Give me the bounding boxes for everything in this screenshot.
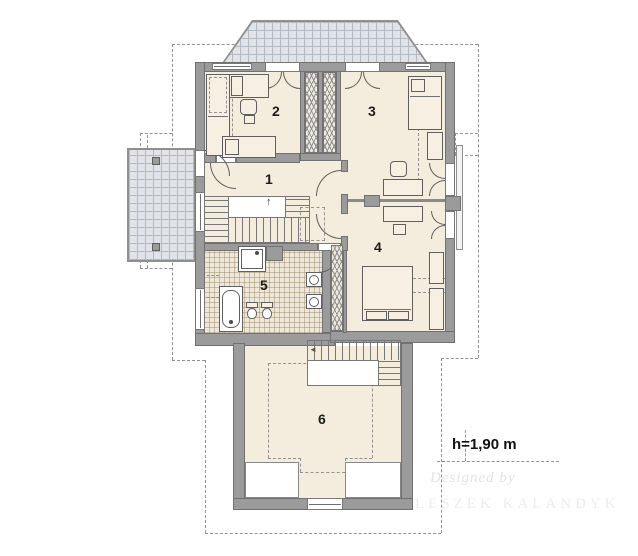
room3-desk — [383, 179, 423, 196]
window-mullion — [214, 66, 250, 67]
terrace-left-tiles — [129, 150, 194, 260]
bed-pillow — [411, 79, 425, 92]
washbasin-bowl — [309, 297, 319, 307]
room4-cabinet-b — [429, 288, 444, 330]
terrace-post — [152, 157, 160, 165]
bed-blanket-line — [410, 96, 440, 97]
wardrobe-room4 — [331, 245, 343, 331]
bay-door-room2-opening — [265, 62, 300, 72]
room3-chair — [390, 161, 407, 177]
room2-sofa — [229, 74, 269, 98]
room2-chair — [240, 99, 257, 115]
wall-wardrobe-right — [343, 245, 347, 333]
bay-door-room3-opening — [345, 62, 380, 72]
stairs-room6-treads — [307, 340, 401, 360]
floor-plan: ↑ ◄ — [0, 0, 638, 556]
closet-a — [305, 72, 318, 153]
wardrobe-dashed-inner — [209, 77, 227, 113]
partition-room3-room4 — [348, 199, 446, 202]
bathtub-drain — [229, 320, 233, 324]
wall-garage-left — [233, 343, 245, 510]
top-window-room3 — [405, 63, 431, 70]
balcony-door-room3-opening — [445, 163, 455, 196]
bed-pillow — [388, 311, 409, 320]
room4-chair — [393, 224, 406, 235]
stairs-main-right-flight — [286, 196, 310, 218]
height-line — [437, 461, 559, 462]
shower — [238, 246, 266, 272]
room3-bed — [408, 76, 442, 130]
garage-window — [307, 498, 343, 510]
toilet-bowl — [247, 308, 257, 319]
watermark-designed-by: Designed by — [430, 470, 516, 487]
balcony-door-post — [445, 196, 461, 211]
bidet-bowl — [262, 308, 272, 319]
closet-wall-right — [336, 71, 341, 161]
sofa-cushion — [231, 76, 243, 96]
window-mullion — [200, 290, 201, 328]
room3-nightstand — [427, 132, 443, 160]
room-label-hall: 1 — [265, 172, 273, 186]
balcony-dash-top — [455, 133, 478, 134]
bed-blanket-line — [364, 309, 411, 310]
room6-dash-bl — [268, 458, 301, 459]
roof-dash-bottom — [205, 533, 441, 534]
stairs-main-bottom-flight — [228, 218, 310, 243]
roof-dash-jog-right — [441, 358, 478, 359]
roof-dash-left-lower — [205, 360, 206, 533]
stairs-up-arrow: ↑ — [266, 197, 272, 208]
room6-dash-nr — [345, 458, 346, 472]
closet-wall-bottom — [300, 153, 341, 161]
washbasin — [306, 272, 322, 287]
window-mullion — [200, 194, 201, 230]
top-window-room2 — [212, 63, 252, 70]
bed-pillow — [366, 311, 387, 320]
bath-window — [195, 288, 205, 330]
room6-dash-nb — [300, 472, 345, 473]
garage-void-left — [245, 462, 299, 498]
wall-hall-room3-b — [341, 194, 348, 214]
closet-b — [323, 72, 336, 153]
watermark-author: LESZEK KALANDYK — [415, 496, 620, 513]
shower-drain — [255, 251, 259, 255]
partition-post — [364, 195, 380, 207]
stairs-room6-winder — [379, 360, 401, 386]
wall-hall-room3-a — [341, 160, 348, 172]
room6-dash-br — [345, 458, 372, 459]
balcony-door-room4-opening — [445, 211, 455, 239]
terrace-dash-bottom — [140, 268, 172, 269]
stairs-room6-railing — [307, 360, 379, 386]
washbasin-bowl — [309, 275, 319, 285]
terrace-post — [152, 243, 160, 251]
room4-cabinet-a — [429, 252, 444, 284]
stairwell-opening — [228, 196, 286, 218]
room-label-room6: 6 — [318, 412, 326, 426]
garage-void-right — [345, 462, 401, 498]
window-mullion — [309, 504, 341, 505]
wardrobe-shelf-line — [208, 116, 228, 117]
wall-garage-right — [401, 343, 413, 510]
roof-dash-jog-left — [172, 360, 205, 361]
shower-tray — [241, 249, 263, 269]
bay-terrace-tiles — [224, 22, 426, 63]
bathtub — [219, 286, 243, 332]
room4-double-bed — [362, 266, 413, 321]
stairs-main-left-flight — [204, 196, 228, 243]
bed-pillow — [225, 139, 239, 155]
room2-bed — [222, 136, 276, 158]
roof-dash-right-upper — [478, 44, 479, 358]
stairs-down-marker: ◄ — [309, 346, 317, 354]
washbasin — [306, 294, 322, 309]
room6-dash-left — [268, 363, 269, 458]
shower-wall-stub — [266, 246, 283, 261]
room-label-bedroom3: 3 — [368, 104, 376, 118]
room-label-bathroom: 5 — [260, 278, 268, 292]
height-annotation: h=1,90 m — [452, 437, 517, 452]
terrace-dash-top — [140, 133, 172, 134]
room6-dash-nl — [300, 458, 301, 472]
room-label-bedroom4: 4 — [374, 240, 382, 254]
room-label-bedroom2: 2 — [272, 104, 280, 118]
room4-desk — [383, 206, 423, 222]
room2-desk — [244, 115, 255, 124]
window-mullion — [407, 66, 429, 67]
